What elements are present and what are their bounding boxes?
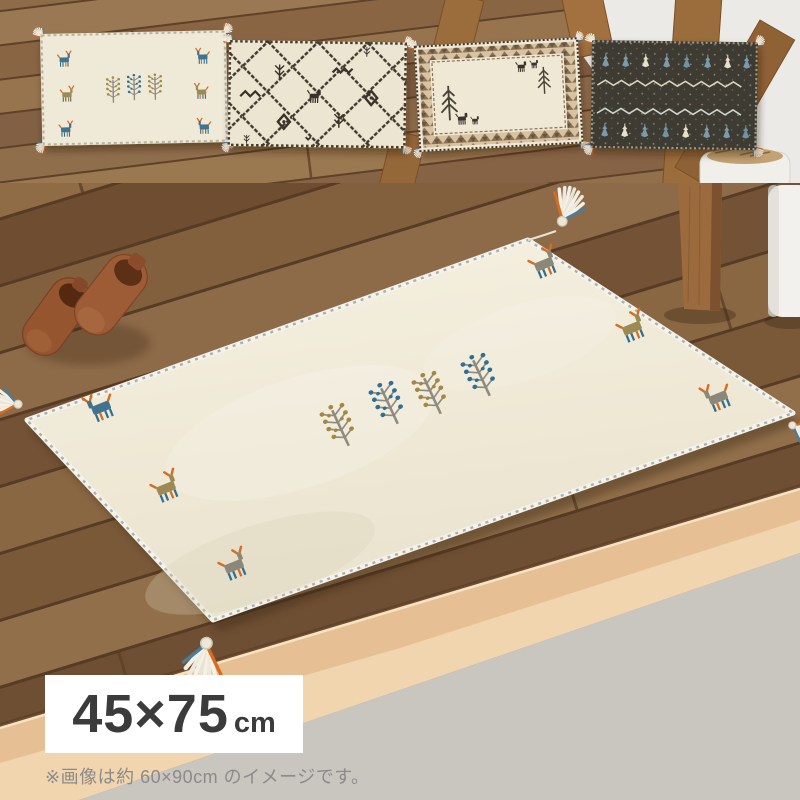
variant-charcoal-rows (582, 31, 767, 159)
white-planter (764, 185, 800, 329)
size-value: 45×75 (72, 675, 229, 753)
variant-bordered-pines (406, 29, 592, 160)
variant-strip (0, 0, 800, 183)
size-badge: 45×75cm (45, 675, 303, 753)
size-note: ※画像は約 60×90cm のイメージです。 (45, 763, 369, 789)
basket (700, 148, 790, 183)
product-photo: 45×75cm ※画像は約 60×90cm のイメージです。 (0, 0, 800, 800)
size-unit: cm (234, 707, 276, 740)
variant-ivory-goats-trees (31, 21, 237, 155)
variant-diamond-lattice (220, 32, 415, 156)
